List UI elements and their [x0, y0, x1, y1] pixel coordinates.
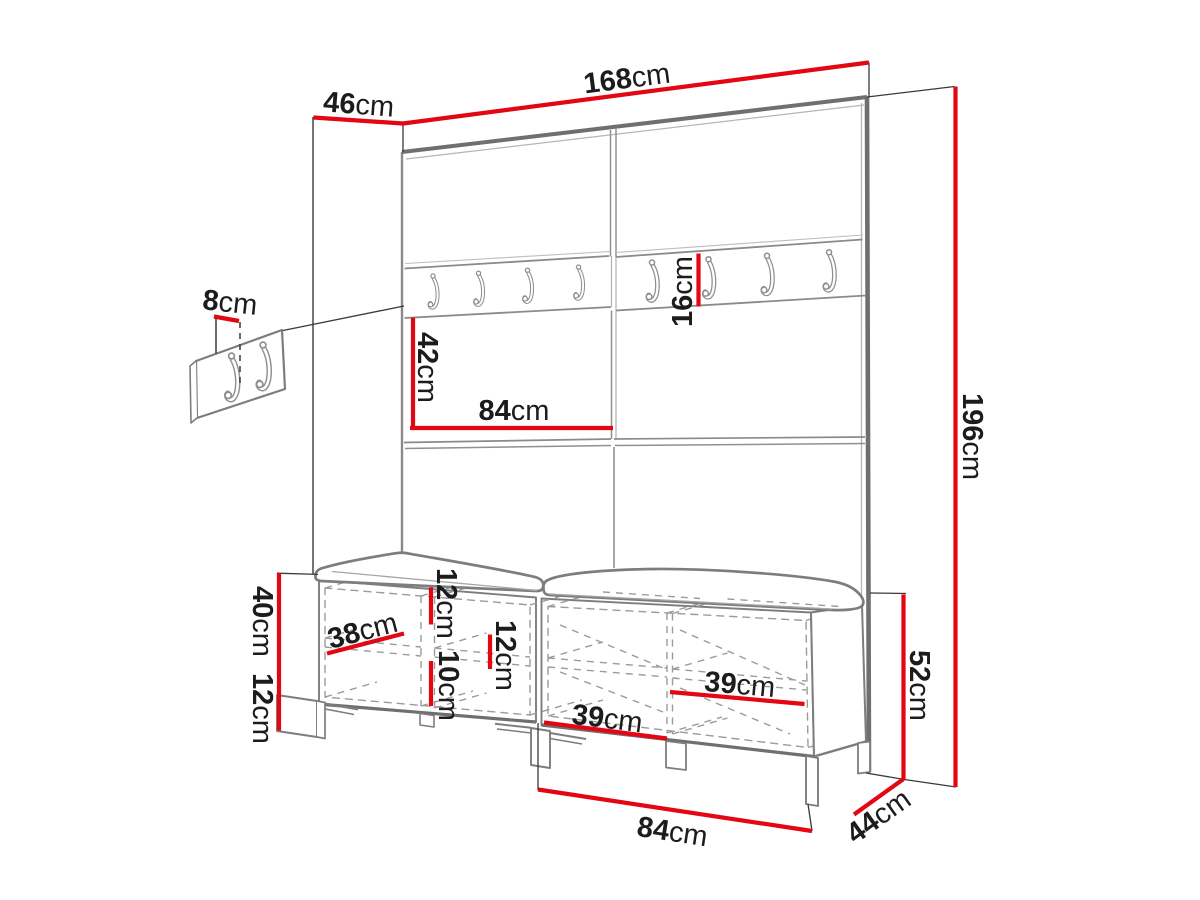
svg-text:84cm: 84cm [635, 811, 710, 853]
svg-text:44cm: 44cm [841, 783, 917, 850]
svg-text:42cm: 42cm [411, 332, 443, 403]
svg-text:46cm: 46cm [322, 86, 395, 123]
svg-text:12cm: 12cm [246, 673, 278, 744]
svg-text:10cm: 10cm [432, 650, 464, 721]
svg-text:12cm: 12cm [430, 568, 462, 639]
svg-text:40cm: 40cm [246, 586, 278, 657]
svg-text:196cm: 196cm [956, 393, 988, 480]
svg-text:52cm: 52cm [903, 650, 935, 721]
svg-text:16cm: 16cm [667, 256, 699, 327]
svg-text:12cm: 12cm [489, 620, 521, 691]
svg-text:39cm: 39cm [703, 666, 776, 704]
svg-text:168cm: 168cm [582, 58, 672, 101]
svg-text:8cm: 8cm [201, 284, 259, 322]
svg-text:84cm: 84cm [479, 395, 550, 427]
